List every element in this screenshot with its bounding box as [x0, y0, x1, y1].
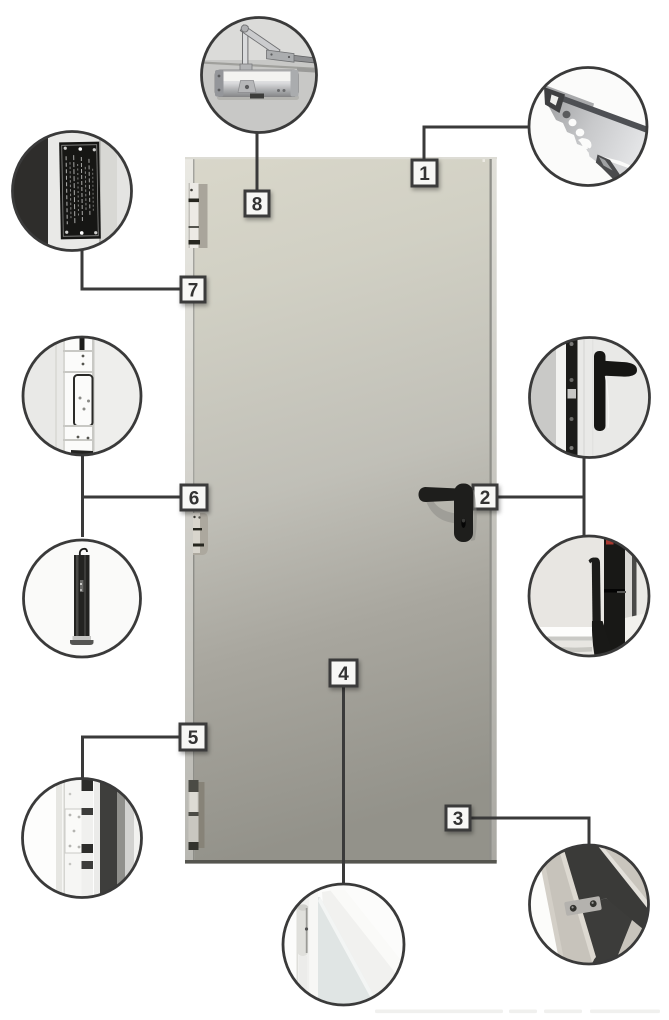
- svg-text:5: 5: [188, 728, 199, 749]
- svg-text:7: 7: [188, 281, 199, 302]
- svg-text:4: 4: [338, 664, 349, 685]
- svg-text:8: 8: [252, 195, 263, 216]
- svg-text:1: 1: [419, 164, 430, 185]
- svg-text:2: 2: [480, 488, 491, 509]
- svg-text:3: 3: [453, 809, 464, 830]
- svg-text:6: 6: [189, 489, 200, 510]
